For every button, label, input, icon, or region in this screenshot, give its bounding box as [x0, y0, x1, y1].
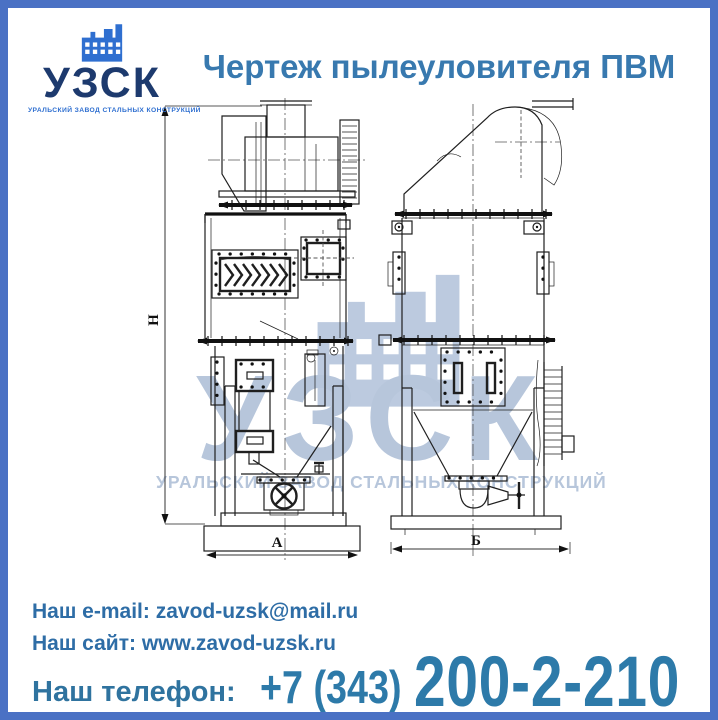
phone-label: Наш телефон: — [32, 676, 236, 709]
dimension-label-side-width: Б — [471, 533, 481, 549]
side-view: Б — [379, 98, 574, 558]
brand-abbr: УЗСК — [28, 62, 176, 105]
factory-icon — [78, 18, 126, 64]
site-line: Наш сайт: www.zavod-uzsk.ru — [32, 632, 336, 656]
front-view: H — [146, 98, 368, 560]
site-value: www.zavod-uzsk.ru — [142, 632, 336, 655]
company-logo: УЗСК УРАЛЬСКИЙ ЗАВОД СТАЛЬНЫХ КОНСТРУКЦИ… — [28, 18, 176, 114]
page-frame: УЗСК УРАЛЬСКИЙ ЗАВОД СТАЛЬНЫХ КОНСТРУКЦИ… — [0, 0, 718, 720]
email-value: zavod-uzsk@mail.ru — [156, 600, 359, 623]
email-line: Наш e-mail: zavod-uzsk@mail.ru — [32, 600, 358, 624]
dimension-label-height: H — [146, 314, 162, 326]
dimension-label-front-width: А — [272, 535, 283, 551]
site-label: Наш сайт: — [32, 632, 136, 655]
phone-area-code: +7 (343) — [260, 660, 402, 714]
email-label: Наш e-mail: — [32, 600, 150, 623]
brand-tagline: УРАЛЬСКИЙ ЗАВОД СТАЛЬНЫХ КОНСТРУКЦИЙ — [28, 107, 176, 114]
phone-number: 200-2-210 — [414, 642, 680, 720]
page-title: Чертеж пылеуловителя ПВМ — [180, 48, 698, 86]
